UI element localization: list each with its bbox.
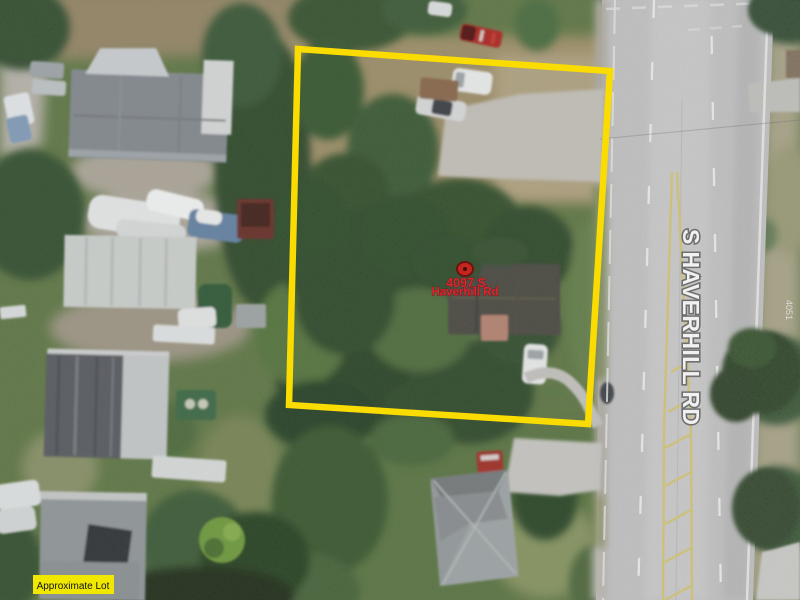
svg-text:Haverhill Rd: Haverhill Rd bbox=[431, 287, 498, 299]
svg-text:Approximate Lot: Approximate Lot bbox=[37, 581, 110, 592]
